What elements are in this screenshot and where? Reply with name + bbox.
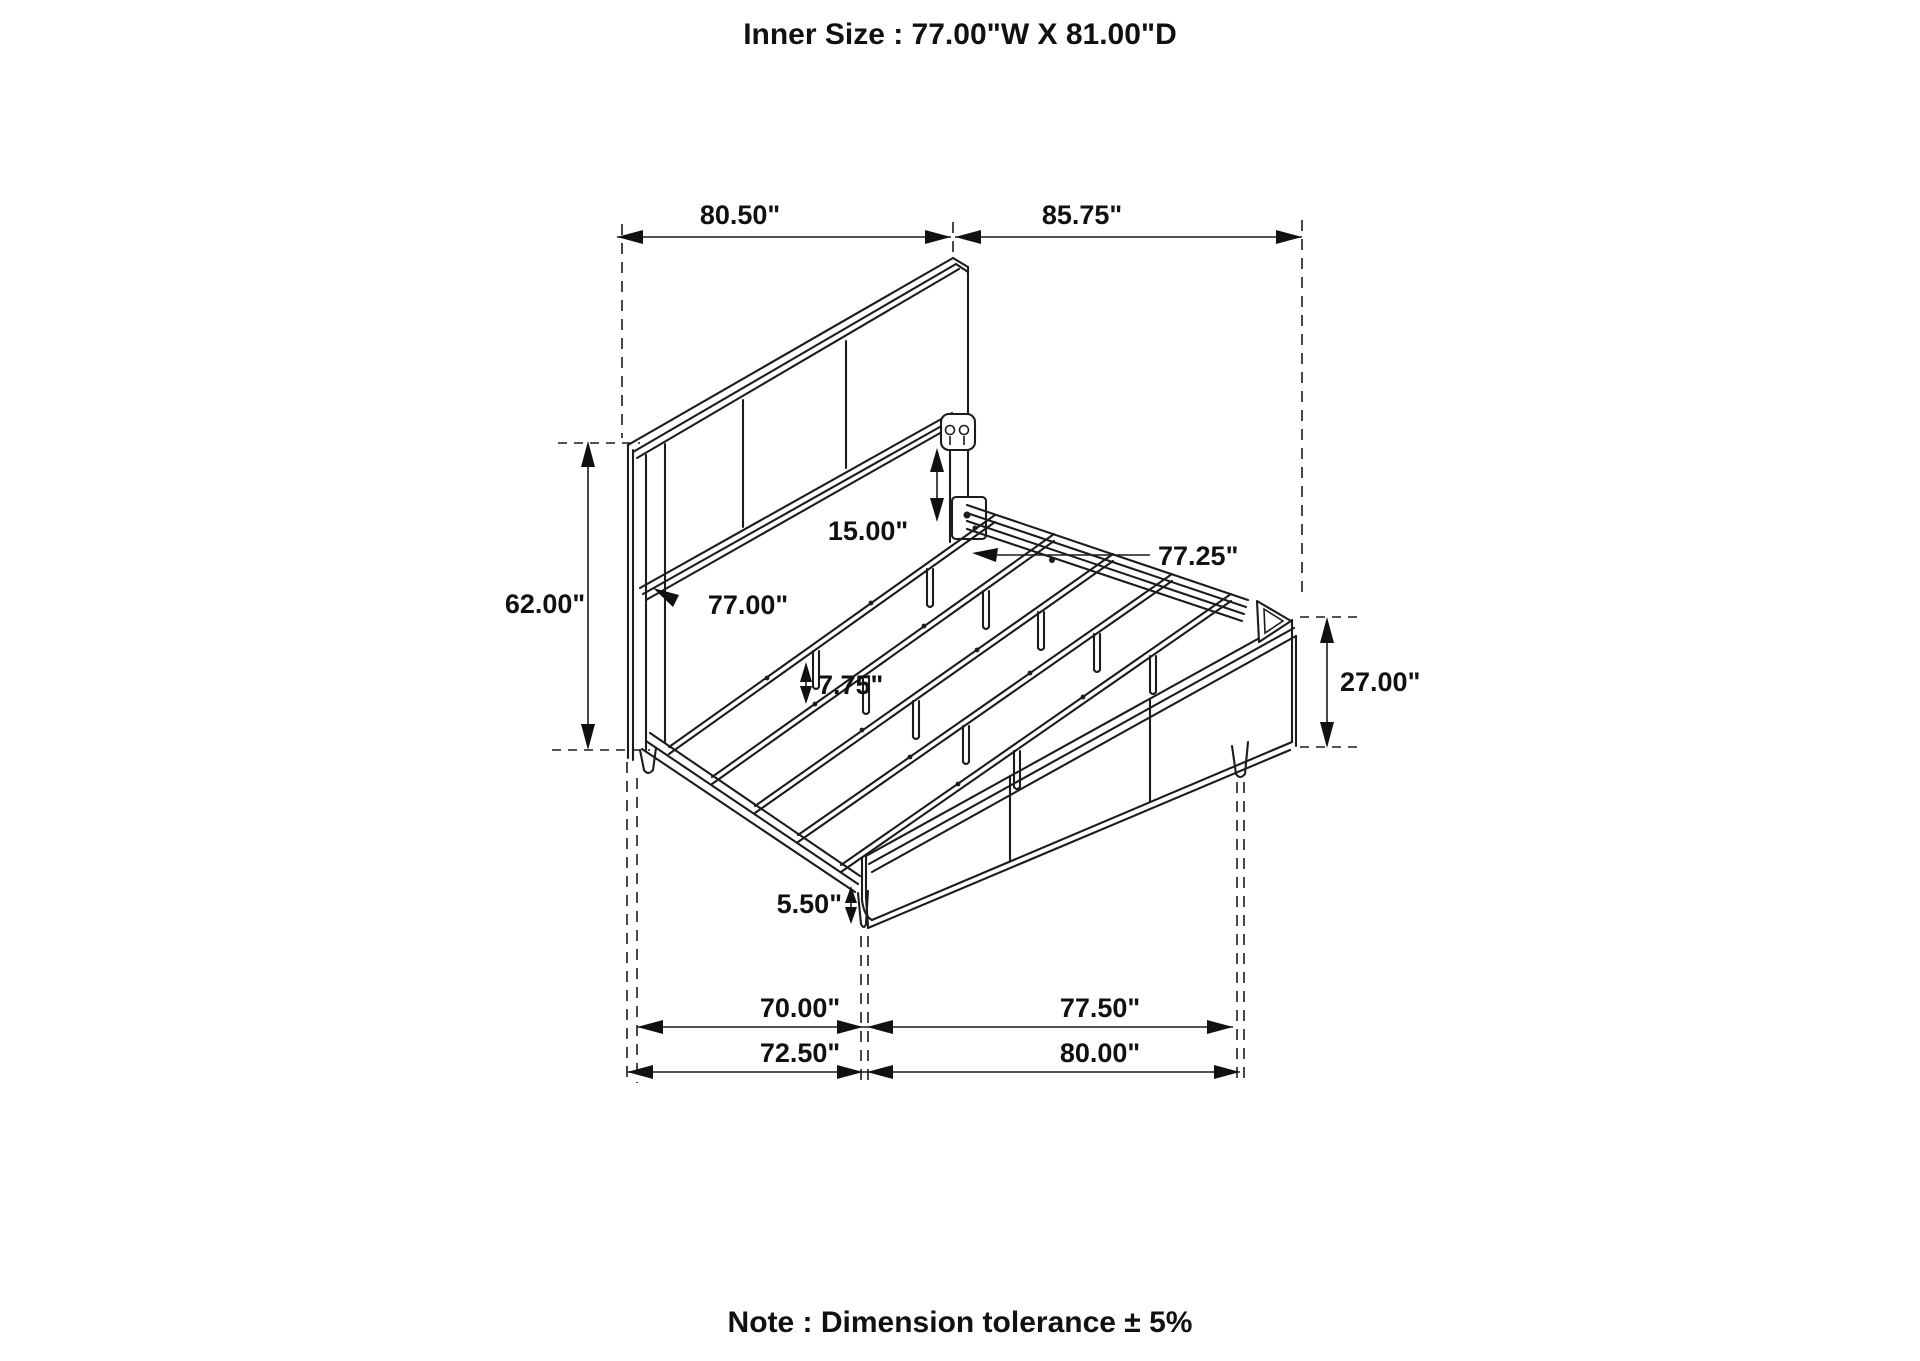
dim-headboard-height: 62.00" [505, 589, 585, 619]
dim-front-leg-height: 5.50" [777, 889, 842, 919]
dim-outer-depth: 80.00" [1060, 1038, 1140, 1068]
title-inner-size: Inner Size : 77.00"W X 81.00"D [743, 18, 1177, 51]
dim-rail-length: 77.25" [1158, 541, 1238, 571]
note-tolerance: Note : Dimension tolerance ± 5% [728, 1306, 1193, 1339]
bed-dimension-diagram: Inner Size : 77.00"W X 81.00"D Note : Di… [0, 0, 1920, 1361]
labels: Inner Size : 77.00"W X 81.00"D Note : Di… [505, 18, 1421, 1339]
headboard-hook-bracket [941, 414, 986, 539]
dim-footboard-height: 27.00" [1340, 667, 1420, 697]
dimension-lines [581, 230, 1334, 1079]
dim-slat-leg-height: 7.75" [818, 670, 883, 700]
dim-top-depth: 85.75" [1042, 200, 1122, 230]
dim-inner-width: 70.00" [760, 993, 840, 1023]
footboard-corner-bracket [1257, 601, 1291, 642]
extension-lines [552, 220, 1362, 1083]
dim-top-width: 80.50" [700, 200, 780, 230]
dim-headboard-width: 77.00" [708, 590, 788, 620]
dim-inner-depth: 77.50" [1060, 993, 1140, 1023]
dimension-diagram-page: Inner Size : 77.00"W X 81.00"D Note : Di… [0, 0, 1920, 1361]
dim-bracket-offset: 15.00" [828, 516, 908, 546]
dim-outer-width: 72.50" [760, 1038, 840, 1068]
footboard [858, 601, 1296, 928]
